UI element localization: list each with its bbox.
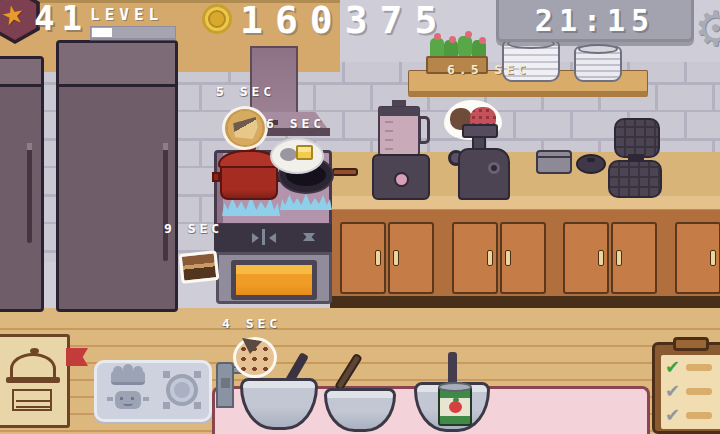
tomato-can[interactable] bbox=[438, 386, 472, 426]
menu-board[interactable] bbox=[0, 334, 70, 428]
station-buttons-panel bbox=[94, 360, 212, 422]
timer-label-cookie: 4 SEC bbox=[222, 316, 281, 331]
cheese-plate-bubble[interactable] bbox=[222, 106, 268, 150]
bowl-stack[interactable] bbox=[574, 46, 622, 82]
plate-notches bbox=[163, 371, 170, 378]
cookie-dough-bubble[interactable] bbox=[232, 336, 280, 380]
clipboard-paper: ✔ ✔ ✔ bbox=[661, 355, 720, 429]
check-icon: ✔ bbox=[665, 382, 680, 400]
check-icon: ✔ bbox=[665, 406, 680, 424]
blender-jar[interactable] bbox=[378, 106, 420, 156]
chef-button[interactable] bbox=[105, 367, 151, 417]
stove-controls[interactable] bbox=[214, 224, 332, 252]
bowl-stack-top bbox=[578, 44, 618, 54]
chocolate-bubble[interactable] bbox=[178, 248, 222, 286]
pan-lid[interactable] bbox=[576, 154, 606, 174]
meat-grinder[interactable] bbox=[458, 148, 510, 200]
gear-icon[interactable]: ⚙ bbox=[694, 0, 720, 56]
orders-clipboard[interactable]: ✔ ✔ ✔ bbox=[652, 342, 720, 434]
cloche-icon bbox=[10, 353, 56, 377]
dough-blob bbox=[280, 148, 297, 161]
order-line bbox=[686, 388, 712, 395]
butter-cube bbox=[296, 145, 313, 160]
chef-face-icon bbox=[115, 391, 141, 409]
timer-label-cheese: 5 SEC bbox=[216, 84, 275, 99]
clock-value: 21:15 bbox=[535, 0, 655, 38]
pan-handle bbox=[332, 168, 358, 176]
cabinet-pair[interactable] bbox=[675, 222, 720, 294]
level-label: LEVEL bbox=[90, 5, 163, 24]
clock-panel: 21:15 bbox=[496, 0, 694, 42]
can-lid bbox=[438, 382, 472, 392]
cabinet-pair[interactable] bbox=[340, 222, 437, 294]
timer-label-butter: 6 SEC bbox=[266, 116, 325, 131]
cabinet-pair[interactable] bbox=[452, 222, 549, 294]
waffle-iron-top[interactable] bbox=[614, 118, 660, 158]
chocolate-bar bbox=[179, 250, 220, 284]
fridge-right[interactable] bbox=[56, 40, 178, 312]
level-progress-bar bbox=[90, 26, 176, 39]
game-screen: 5 SEC 6 SEC 6.5 SEC 9 SEC 4 SEC bbox=[0, 0, 720, 434]
menu-lines bbox=[12, 389, 52, 411]
small-pot[interactable] bbox=[536, 150, 572, 174]
score-value: 160375 bbox=[240, 0, 449, 42]
coin-icon bbox=[202, 4, 232, 34]
plate-button[interactable] bbox=[163, 371, 201, 409]
plate-icon bbox=[166, 374, 198, 406]
stove[interactable] bbox=[214, 146, 334, 304]
order-line bbox=[686, 364, 712, 371]
order-line bbox=[686, 412, 712, 419]
oven[interactable] bbox=[216, 252, 332, 304]
timer-label-chocolate: 9 SEC bbox=[164, 221, 223, 236]
range-hood-duct bbox=[250, 46, 298, 116]
cabinet-pair[interactable] bbox=[563, 222, 660, 294]
cheese-wedge bbox=[231, 115, 259, 141]
cloche-base bbox=[6, 377, 60, 383]
blender-base[interactable] bbox=[372, 154, 430, 200]
timer-label-shelf-plates: 6.5 SEC bbox=[447, 62, 530, 77]
oven-window bbox=[231, 260, 317, 300]
checklist-row: ✔ bbox=[661, 355, 720, 379]
fridge-left[interactable] bbox=[0, 56, 44, 312]
butter-plate-bubble[interactable] bbox=[270, 138, 324, 174]
checklist-row: ✔ bbox=[661, 379, 720, 403]
check-icon: ✔ bbox=[665, 358, 680, 376]
level-progress-fill bbox=[92, 28, 112, 37]
clipboard-clip bbox=[673, 337, 709, 351]
level-value: 41 bbox=[34, 0, 89, 38]
waffle-iron-bottom[interactable] bbox=[608, 160, 662, 198]
checklist-row: ✔ bbox=[661, 403, 720, 427]
